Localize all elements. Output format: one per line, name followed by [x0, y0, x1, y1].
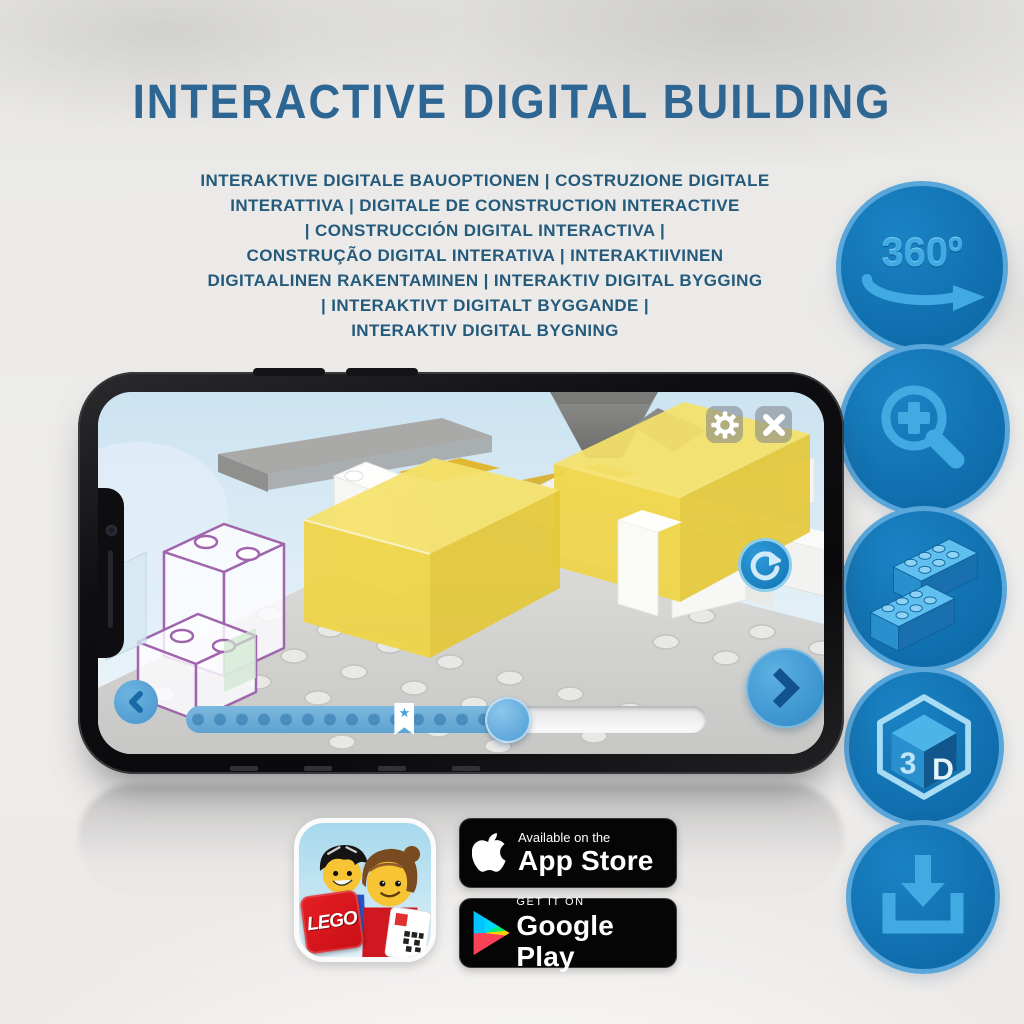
google-play-icon: [460, 910, 516, 956]
google-play-tagline: GET IT ON: [516, 895, 676, 910]
lego-app-icon[interactable]: LEGO: [294, 818, 436, 962]
app-store-badge[interactable]: Available on the App Store: [459, 818, 677, 888]
store-badges-row: LEGO Available on the App Store GET IT O…: [0, 0, 1024, 1024]
app-store-name: App Store: [518, 845, 654, 876]
google-play-badge[interactable]: GET IT ON Google Play: [459, 898, 677, 968]
app-store-tagline: Available on the: [518, 830, 654, 845]
lego-logo: LEGO: [299, 889, 365, 955]
google-play-name: Google Play: [516, 910, 676, 972]
lego-logo-text: LEGO: [306, 908, 358, 937]
apple-icon: [460, 832, 518, 874]
poster: INTERACTIVE DIGITAL BUILDING INTERAKTIVE…: [0, 0, 1024, 1024]
